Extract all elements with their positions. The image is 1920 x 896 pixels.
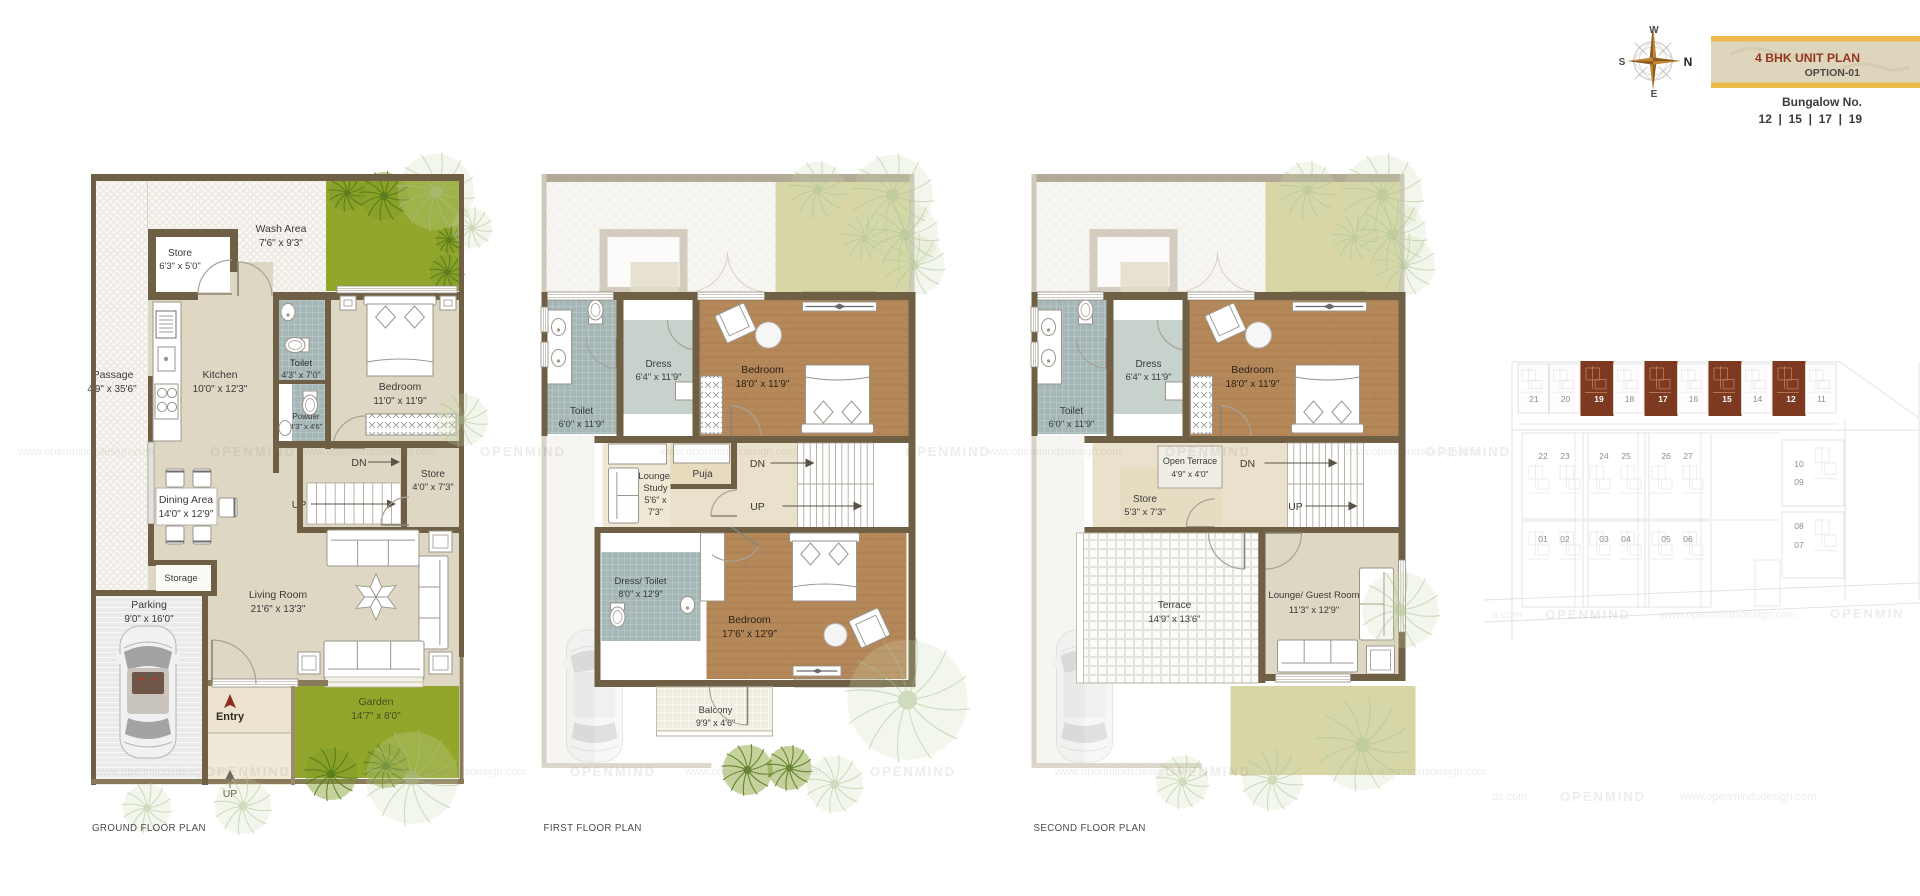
svg-text:www.openmindsdesign.com: www.openmindsdesign.com [1659,609,1796,621]
svg-text:OPENMIN: OPENMIN [1830,606,1905,621]
svg-text:15: 15 [1722,394,1732,404]
svg-text:Passage: Passage [93,369,134,381]
svg-text:DN: DN [1240,458,1255,470]
svg-text:11'3" x 12'9": 11'3" x 12'9" [1289,605,1339,615]
svg-text:OPENMIND: OPENMIND [480,444,566,459]
svg-text:17'6" x 12'9": 17'6" x 12'9" [722,629,777,640]
svg-text:08: 08 [1794,521,1804,531]
svg-text:14'7" x 8'0": 14'7" x 8'0" [351,711,401,722]
svg-text:OPENMIND: OPENMIND [870,764,956,779]
svg-text:26: 26 [1661,451,1671,461]
svg-text:7'3": 7'3" [648,507,663,517]
svg-text:17: 17 [1658,394,1668,404]
svg-text:www.openmindsdesign.com: www.openmindsdesign.com [984,446,1121,458]
svg-text:8'0" x 12'9": 8'0" x 12'9" [618,589,662,599]
svg-text:OPENMIND: OPENMIND [1425,444,1511,459]
svg-text:6'4" x 11'9": 6'4" x 11'9" [1125,372,1171,383]
svg-text:www.openmindsdesign.com: www.openmindsdesign.com [659,446,796,458]
svg-text:7'6" x 9'3": 7'6" x 9'3" [259,238,303,249]
svg-text:www.openmindsdesign.com: www.openmindsdesign.com [684,766,821,778]
svg-text:25: 25 [1621,451,1631,461]
svg-text:Study: Study [643,483,668,494]
svg-text:12 | 15 | 17 | 19: 12 | 15 | 17 | 19 [1759,112,1863,126]
svg-text:Dress: Dress [1135,359,1161,370]
svg-text:4'0" x 7'3": 4'0" x 7'3" [412,482,454,493]
svg-text:09: 09 [1794,477,1804,487]
svg-text:14'9" x 13'6": 14'9" x 13'6" [1148,614,1200,625]
svg-text:Toilet: Toilet [1060,406,1084,417]
svg-text:Store: Store [1133,494,1157,505]
svg-text:6'0" x 11'9": 6'0" x 11'9" [558,419,604,430]
svg-text:Toilet: Toilet [290,358,313,369]
svg-text:Puja: Puja [692,469,712,480]
svg-text:11'0" x 11'9": 11'0" x 11'9" [373,396,427,407]
svg-text:Balcony: Balcony [699,705,733,716]
svg-text:Terrace: Terrace [1158,600,1192,611]
svg-text:01: 01 [1538,534,1548,544]
svg-text:9'0" x 16'0": 9'0" x 16'0" [124,614,174,625]
svg-text:Lounge/ Guest Room: Lounge/ Guest Room [1268,590,1359,601]
svg-text:6'4" x 11'9": 6'4" x 11'9" [635,372,681,383]
svg-text:07: 07 [1794,540,1804,550]
svg-text:10'0" x 12'3": 10'0" x 12'3" [193,384,248,395]
svg-text:4 BHK UNIT PLAN: 4 BHK UNIT PLAN [1755,51,1860,65]
svg-text:UP: UP [1288,501,1303,513]
svg-text:Bedroom: Bedroom [1231,364,1274,376]
svg-text:Dress/ Toilet: Dress/ Toilet [614,576,666,587]
svg-text:4'9" x 4'0": 4'9" x 4'0" [1171,469,1208,479]
svg-text:12: 12 [1786,394,1796,404]
svg-text:S: S [1619,57,1626,68]
svg-text:Bedroom: Bedroom [728,614,771,626]
svg-text:Living Room: Living Room [249,589,308,601]
svg-text:10: 10 [1794,459,1804,469]
svg-text:18'0" x 11'9": 18'0" x 11'9" [1225,379,1280,390]
svg-text:Kitchen: Kitchen [202,369,237,381]
svg-text:06: 06 [1683,534,1693,544]
svg-text:Parking: Parking [131,599,167,611]
svg-text:14'0" x 12'9": 14'0" x 12'9" [159,509,214,520]
svg-text:23: 23 [1560,451,1570,461]
svg-text:5'6" x: 5'6" x [645,495,667,505]
svg-text:SECOND FLOOR PLAN: SECOND FLOOR PLAN [1034,823,1146,834]
svg-text:N: N [1684,55,1693,69]
svg-text:Storage: Storage [164,573,197,584]
svg-text:6'0" x 11'9": 6'0" x 11'9" [1048,419,1094,430]
svg-text:GROUND FLOOR PLAN: GROUND FLOOR PLAN [92,823,206,834]
svg-text:a.com: a.com [1492,609,1522,621]
svg-text:OPENMIND: OPENMIND [905,444,991,459]
svg-text:Store: Store [421,469,445,480]
svg-text:www.openmindsdesign.com: www.openmindsdesign.com [389,766,526,778]
svg-text:www.openmindsdesign.com: www.openmindsdesign.com [1349,766,1486,778]
svg-text:www.openmindsdesign.com: www.openmindsdesign.com [17,446,154,458]
svg-text:www.openmindsdesign.com: www.openmindsdesign.com [299,446,436,458]
svg-text:19: 19 [1594,394,1604,404]
svg-text:Wash Area: Wash Area [256,223,307,235]
svg-text:03: 03 [1599,534,1609,544]
svg-text:4'3" x 4'6": 4'3" x 4'6" [290,422,323,431]
svg-text:OPENMIND: OPENMIND [1560,789,1646,804]
svg-text:OPENMIND: OPENMIND [1165,444,1251,459]
svg-text:21'6" x 13'3": 21'6" x 13'3" [251,604,306,615]
svg-text:5'3" x 7'3": 5'3" x 7'3" [1124,507,1166,518]
svg-text:OPENMIND: OPENMIND [1545,607,1631,622]
svg-text:Dress: Dress [645,359,671,370]
svg-text:14: 14 [1753,394,1763,404]
svg-text:Store: Store [168,248,192,259]
svg-text:16: 16 [1689,394,1699,404]
svg-text:27: 27 [1683,451,1693,461]
svg-text:22: 22 [1538,451,1548,461]
svg-text:OPENMIND: OPENMIND [205,764,291,779]
svg-text:18: 18 [1625,394,1635,404]
svg-text:OPENMIND: OPENMIND [1165,764,1251,779]
svg-text:02: 02 [1560,534,1570,544]
svg-text:Toilet: Toilet [570,406,594,417]
svg-text:9'9" x 4'6": 9'9" x 4'6" [696,718,735,728]
svg-text:FIRST FLOOR PLAN: FIRST FLOOR PLAN [544,823,642,834]
svg-text:Entry: Entry [216,711,245,723]
svg-text:Bedroom: Bedroom [741,364,784,376]
svg-text:20: 20 [1561,394,1571,404]
svg-text:Lounge/: Lounge/ [638,471,673,482]
svg-text:Bedroom: Bedroom [379,381,422,393]
svg-text:Bungalow No.: Bungalow No. [1782,95,1862,109]
svg-text:ds.com: ds.com [1492,791,1527,803]
svg-text:UP: UP [750,501,765,513]
svg-text:E: E [1651,89,1658,100]
svg-text:11: 11 [1817,394,1826,404]
svg-text:DN: DN [750,458,765,470]
svg-text:04: 04 [1621,534,1631,544]
svg-text:18'0" x 11'9": 18'0" x 11'9" [735,379,790,390]
svg-text:OPENMIND: OPENMIND [570,764,656,779]
svg-text:OPTION-01: OPTION-01 [1805,67,1861,79]
svg-text:Garden: Garden [358,696,393,708]
svg-text:05: 05 [1661,534,1671,544]
svg-text:DN: DN [351,457,366,469]
svg-text:OPENMIND: OPENMIND [210,444,296,459]
svg-text:4'3" x 7'0": 4'3" x 7'0" [281,370,320,380]
svg-text:Dining Area: Dining Area [159,494,213,506]
svg-text:www.openmindsdesign.com: www.openmindsdesign.com [1679,791,1816,803]
svg-text:6'3" x 5'0": 6'3" x 5'0" [159,261,201,272]
svg-text:21: 21 [1529,394,1539,404]
svg-text:24: 24 [1599,451,1609,461]
svg-text:W: W [1649,25,1659,36]
